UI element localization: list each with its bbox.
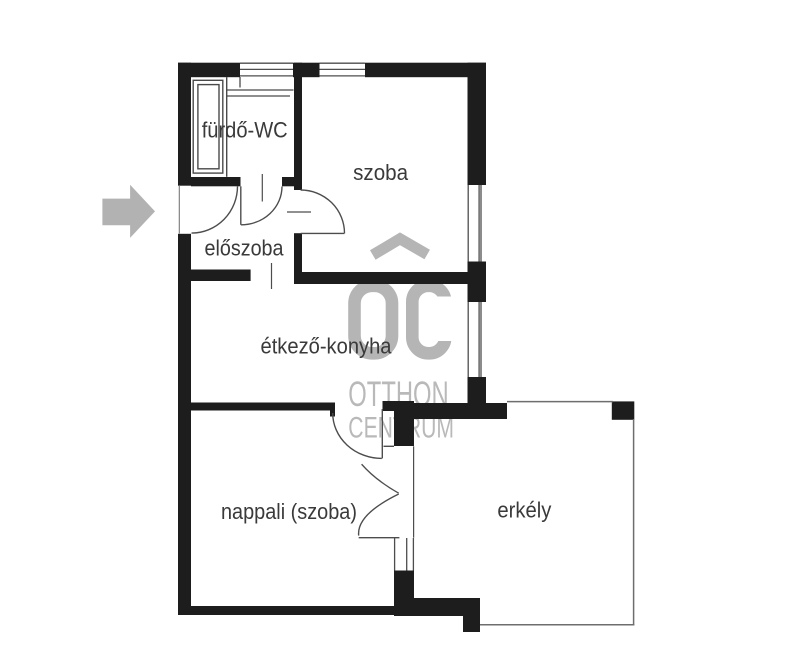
svg-text:szoba: szoba xyxy=(353,160,409,185)
svg-text:erkély: erkély xyxy=(497,497,551,522)
svg-text:nappali (szoba): nappali (szoba) xyxy=(221,499,357,524)
svg-text:fürdő-WC: fürdő-WC xyxy=(202,118,288,143)
svg-text:előszoba: előszoba xyxy=(205,235,285,260)
svg-text:étkező-konyha: étkező-konyha xyxy=(261,333,393,358)
